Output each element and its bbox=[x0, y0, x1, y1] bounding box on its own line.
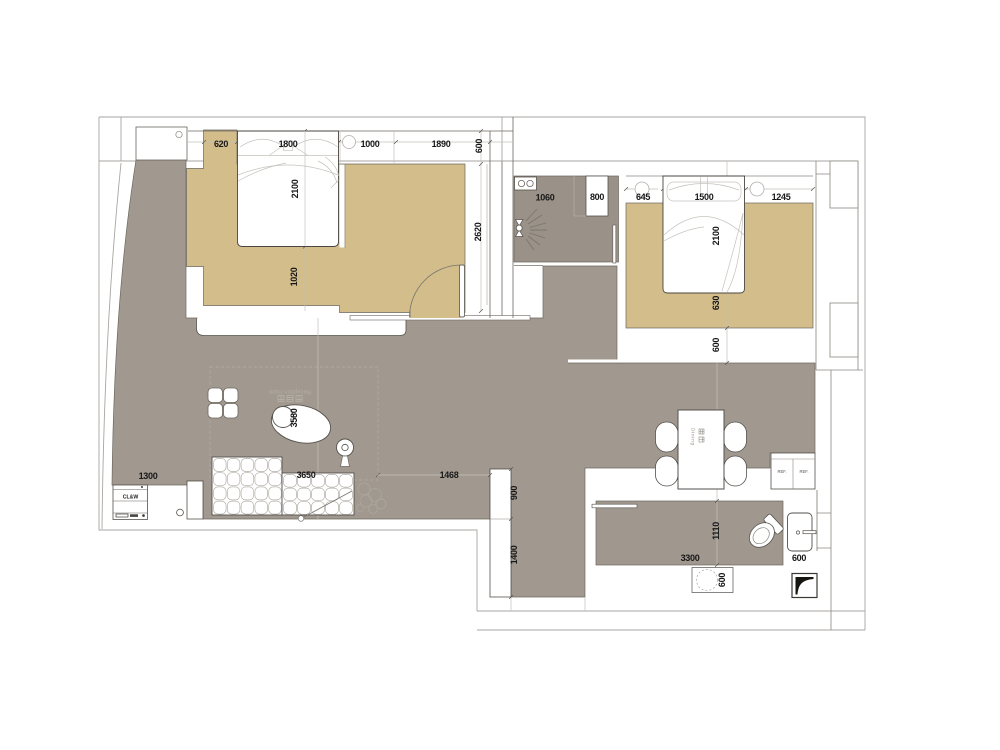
svg-text:630: 630 bbox=[711, 296, 721, 310]
svg-text:1500: 1500 bbox=[695, 192, 714, 202]
svg-text:600: 600 bbox=[711, 338, 721, 352]
svg-text:1060: 1060 bbox=[536, 193, 555, 203]
svg-text:3650: 3650 bbox=[297, 470, 316, 480]
svg-text:1110: 1110 bbox=[711, 522, 721, 540]
svg-text:1468: 1468 bbox=[440, 470, 459, 480]
svg-text:CL&W: CL&W bbox=[123, 495, 139, 501]
svg-text:900: 900 bbox=[509, 486, 519, 500]
svg-text:600: 600 bbox=[474, 139, 484, 153]
svg-text:1245: 1245 bbox=[772, 192, 791, 202]
svg-text:1300: 1300 bbox=[139, 471, 158, 481]
svg-text:Reception room: Reception room bbox=[269, 388, 311, 394]
svg-text:1800: 1800 bbox=[279, 139, 298, 149]
svg-text:2100: 2100 bbox=[290, 179, 300, 198]
svg-text:REF.: REF. bbox=[799, 469, 808, 474]
svg-text:2100: 2100 bbox=[711, 226, 721, 245]
svg-text:645: 645 bbox=[636, 192, 650, 202]
svg-text:800: 800 bbox=[590, 192, 604, 202]
svg-text:3300: 3300 bbox=[681, 553, 700, 563]
svg-text:600: 600 bbox=[717, 573, 727, 587]
svg-text:620: 620 bbox=[214, 139, 228, 149]
svg-text:600: 600 bbox=[792, 553, 806, 563]
svg-text:3580: 3580 bbox=[289, 408, 299, 427]
svg-text:1000: 1000 bbox=[361, 139, 380, 149]
svg-text:1020: 1020 bbox=[289, 267, 299, 286]
svg-text:Dining: Dining bbox=[691, 428, 696, 446]
svg-text:REF.: REF. bbox=[777, 469, 786, 474]
svg-text:1400: 1400 bbox=[509, 545, 519, 564]
svg-text:2620: 2620 bbox=[473, 222, 483, 241]
svg-text:1890: 1890 bbox=[432, 139, 451, 149]
